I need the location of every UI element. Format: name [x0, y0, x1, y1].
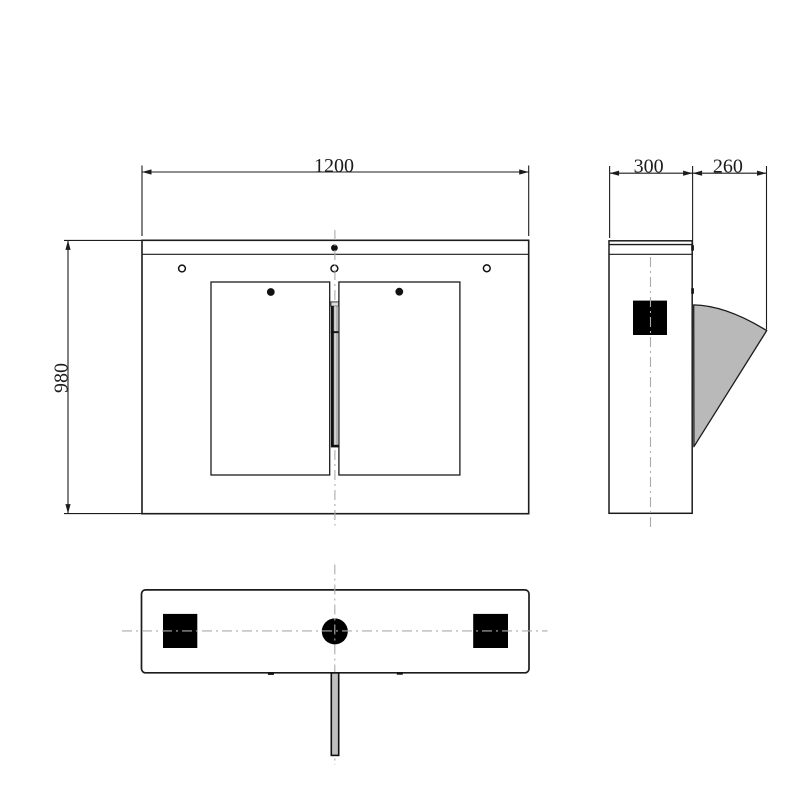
- svg-text:300: 300: [634, 156, 664, 178]
- svg-text:1200: 1200: [314, 155, 354, 177]
- svg-text:980: 980: [51, 363, 73, 393]
- svg-text:260: 260: [713, 156, 743, 178]
